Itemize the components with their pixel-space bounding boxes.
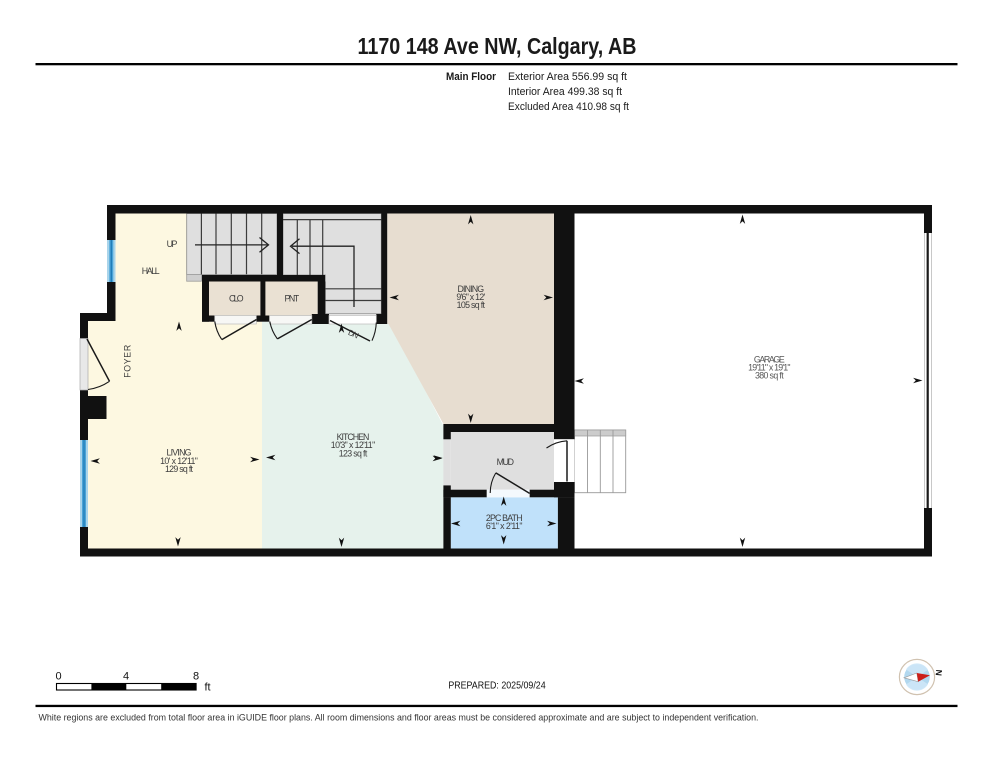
svg-text:0: 0 xyxy=(55,671,61,683)
svg-text:4: 4 xyxy=(123,671,129,683)
svg-text:380 sq ft: 380 sq ft xyxy=(755,371,784,381)
svg-text:Interior Area 499.38 sq ft: Interior Area 499.38 sq ft xyxy=(508,86,622,98)
svg-text:HALL: HALL xyxy=(142,266,160,276)
svg-text:6'1" x 2'11": 6'1" x 2'11" xyxy=(486,521,523,531)
svg-text:129 sq ft: 129 sq ft xyxy=(165,464,194,474)
svg-text:N: N xyxy=(934,669,945,676)
svg-text:1170 148 Ave NW, Calgary, AB: 1170 148 Ave NW, Calgary, AB xyxy=(358,33,637,59)
svg-text:105 sq ft: 105 sq ft xyxy=(457,300,486,310)
svg-text:White regions are excluded fro: White regions are excluded from total fl… xyxy=(39,713,759,723)
svg-text:PREPARED: 2025/09/24: PREPARED: 2025/09/24 xyxy=(448,680,545,691)
svg-text:8: 8 xyxy=(193,671,199,683)
svg-text:MUD: MUD xyxy=(497,457,514,467)
svg-text:123 sq ft: 123 sq ft xyxy=(339,448,368,458)
svg-text:Excluded Area 410.98 sq ft: Excluded Area 410.98 sq ft xyxy=(508,101,629,113)
svg-text:CLO: CLO xyxy=(229,294,244,304)
svg-text:ft: ft xyxy=(205,682,211,694)
svg-text:Exterior Area 556.99 sq ft: Exterior Area 556.99 sq ft xyxy=(508,71,627,83)
svg-text:FOYER: FOYER xyxy=(122,345,132,378)
svg-text:UP: UP xyxy=(167,239,178,249)
svg-text:Main Floor: Main Floor xyxy=(446,71,497,83)
svg-text:PNT: PNT xyxy=(285,294,300,304)
